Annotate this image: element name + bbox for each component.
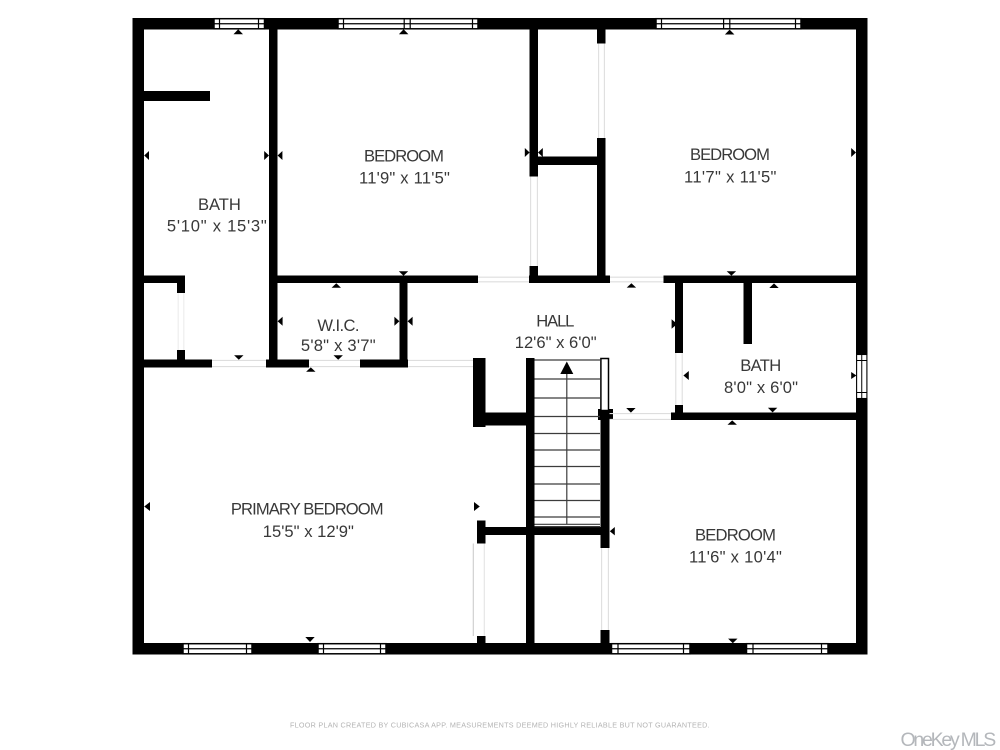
svg-text:W.I.C.: W.I.C. bbox=[317, 316, 359, 335]
svg-text:HALL: HALL bbox=[536, 311, 574, 330]
svg-text:5'8" x 3'7": 5'8" x 3'7" bbox=[301, 336, 376, 355]
svg-text:FLOOR PLAN CREATED BY CUBICASA: FLOOR PLAN CREATED BY CUBICASA APP. MEAS… bbox=[290, 721, 710, 730]
svg-text:BATH: BATH bbox=[198, 195, 241, 214]
svg-text:15'5" x 12'9": 15'5" x 12'9" bbox=[263, 522, 354, 541]
svg-text:11'7" x 11'5": 11'7" x 11'5" bbox=[684, 168, 777, 187]
svg-text:11'9" x 11'5": 11'9" x 11'5" bbox=[359, 168, 450, 187]
svg-text:PRIMARY BEDROOM: PRIMARY BEDROOM bbox=[231, 500, 384, 519]
svg-text:BEDROOM: BEDROOM bbox=[690, 145, 770, 164]
svg-text:BEDROOM: BEDROOM bbox=[364, 146, 444, 165]
svg-text:OneKey MLS: OneKey MLS bbox=[901, 729, 997, 750]
svg-text:5'10" x 15'3": 5'10" x 15'3" bbox=[167, 217, 267, 236]
svg-text:8'0" x 6'0": 8'0" x 6'0" bbox=[724, 378, 798, 397]
svg-text:12'6" x 6'0": 12'6" x 6'0" bbox=[515, 333, 597, 352]
svg-text:BATH: BATH bbox=[740, 356, 781, 375]
svg-text:11'6" x 10'4": 11'6" x 10'4" bbox=[689, 548, 782, 567]
svg-text:BEDROOM: BEDROOM bbox=[695, 526, 776, 545]
